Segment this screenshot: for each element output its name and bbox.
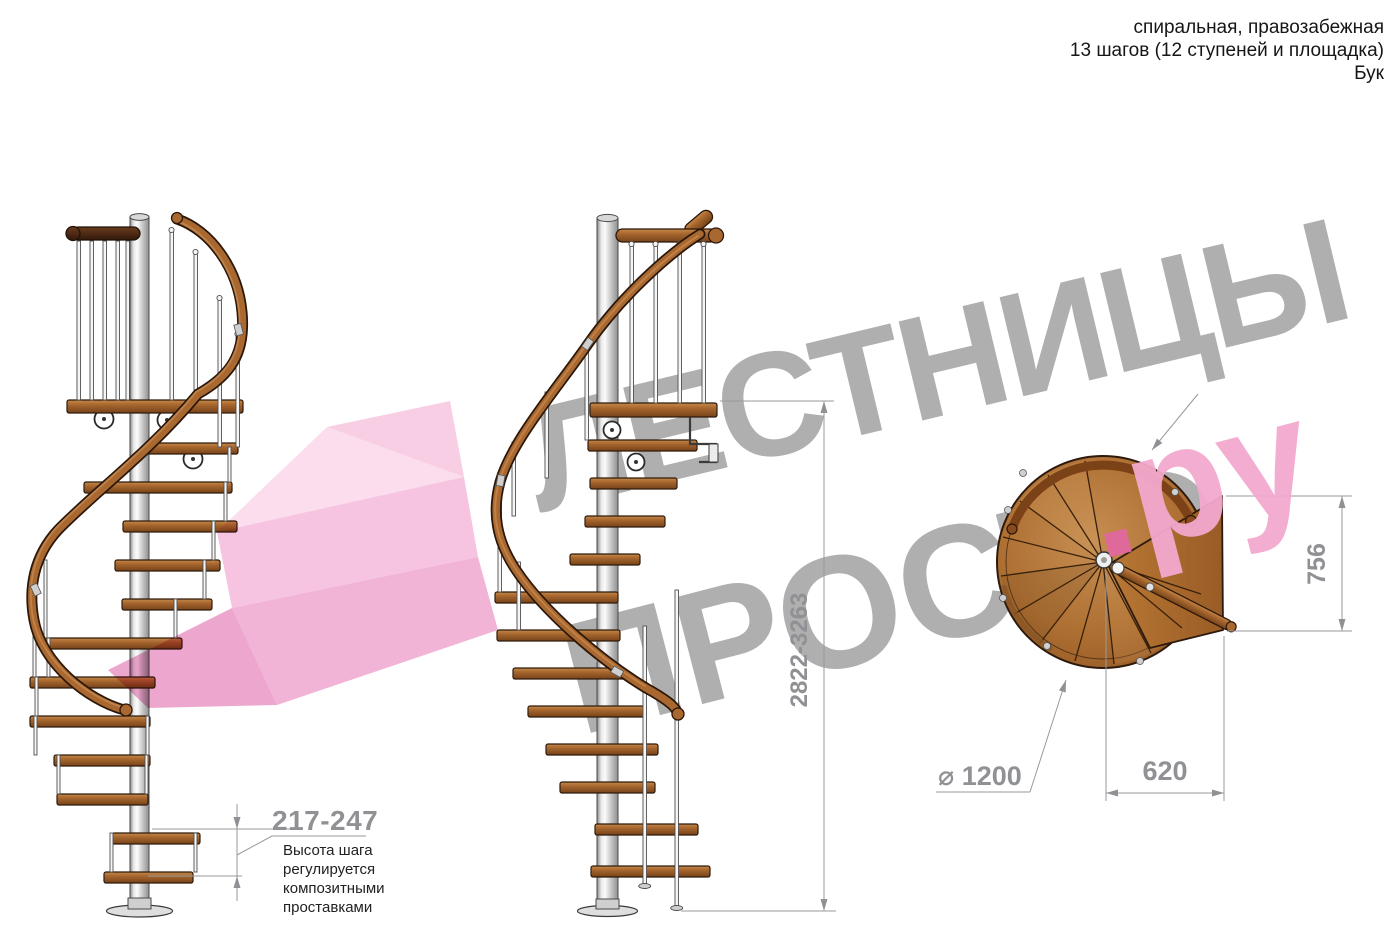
title-block: спиральная, правозабежная 13 шагов (12 с… [1070,16,1384,85]
dim-step-height: 217-247 [272,805,378,836]
note-line: регулируется [283,860,385,879]
top-landing-handrail [66,227,140,241]
platform-tread [67,400,243,413]
dim-diameter: ⌀ 1200 [938,761,1022,791]
note-line: композитными [283,879,385,898]
title-line-type: спиральная, правозабежная [1070,16,1384,39]
platform-tread [590,403,717,417]
note-line: Высота шага [283,841,385,860]
stair-side-view [495,208,724,917]
dim-platform-depth: 756 [1303,543,1331,585]
note-line: проставками [283,898,385,917]
dimension-annotations: 2822-3263 756 620 ⌀ 1200 [148,394,1352,911]
title-line-material: Бук [1070,62,1384,85]
stair-front-view [30,213,243,918]
top-landing-handrail [616,208,724,243]
title-line-steps: 13 шагов (12 ступеней и площадка) [1070,39,1384,62]
staircase-drawing: 2822-3263 756 620 ⌀ 1200 [0,0,1400,950]
dim-overall-height: 2822-3263 [786,593,813,708]
step-height-note: Высота шага регулируется композитными пр… [283,841,385,917]
drawing-canvas: ЛЕСТНИЦЫ ПРОСТО [0,0,1400,950]
top-plan-view [997,456,1238,668]
dim-passage-width: 620 [1142,756,1187,786]
